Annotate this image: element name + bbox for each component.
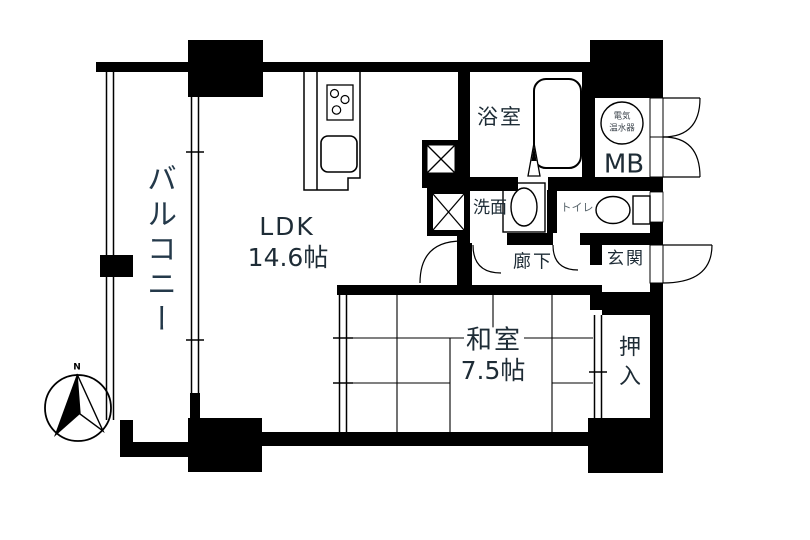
closet-label: 押入 bbox=[611, 335, 643, 393]
wall-genkan-oshiire bbox=[602, 292, 663, 315]
bathroom-fixtures bbox=[528, 79, 581, 176]
ldk-label: LDK bbox=[259, 214, 315, 240]
ldk-washitsu-sliding-door bbox=[333, 295, 353, 432]
floor-plan: バルコニー LDK 14.6帖 浴室 電気 温水器 MB 洗面 トイレ 廊下 玄… bbox=[0, 0, 810, 540]
pipe-shaft-icon-1 bbox=[422, 140, 460, 178]
interior-door-arcs bbox=[420, 241, 578, 283]
mb-doors-icon bbox=[650, 98, 700, 177]
balcony-label: バルコニー bbox=[136, 163, 180, 338]
pipe-shaft-icon-2 bbox=[427, 188, 470, 236]
wall-balcony-corner bbox=[120, 420, 133, 442]
toilet-tank bbox=[633, 196, 650, 224]
wall-balcony-bottom bbox=[120, 442, 188, 457]
meter-box-label: MB bbox=[604, 151, 644, 178]
bathtub-icon bbox=[534, 79, 581, 168]
wall-washitsu-top bbox=[337, 285, 593, 295]
entrance-label: 玄関 bbox=[607, 251, 645, 269]
stove-icon bbox=[327, 85, 353, 120]
wall-block-bottom-left bbox=[188, 418, 262, 472]
wall-hall-top-2 bbox=[580, 233, 663, 245]
japanese-room-label: 和室 bbox=[464, 327, 524, 354]
kitchen-sink-icon bbox=[321, 136, 357, 172]
wall-balcony-left-block bbox=[100, 255, 133, 277]
compass-icon bbox=[45, 374, 111, 441]
wall-genkan-left-low bbox=[590, 285, 602, 310]
balcony-outer-rail bbox=[107, 72, 114, 420]
wall-balcony-top bbox=[96, 62, 190, 72]
floor-plan-drawing bbox=[0, 0, 810, 540]
toilet-bowl bbox=[596, 197, 630, 224]
wall-bath-bottom-left bbox=[470, 177, 518, 191]
wall-bottom bbox=[262, 432, 588, 446]
wall-wash-toilet bbox=[547, 190, 557, 233]
ldk-door-arc bbox=[420, 241, 462, 283]
compass-north-label: N bbox=[73, 363, 81, 372]
wall-block-bottom-right bbox=[588, 418, 663, 473]
burner-icons bbox=[331, 90, 350, 115]
toilet-door-arc bbox=[553, 245, 578, 270]
wall-window-end bbox=[190, 393, 200, 420]
japanese-room-size-label: 7.5帖 bbox=[459, 358, 528, 384]
wall-block-top-left bbox=[188, 40, 263, 97]
toilet-label: トイレ bbox=[561, 202, 594, 214]
water-heater-label-line1: 電気 bbox=[613, 113, 630, 122]
wall-block-top-right bbox=[590, 40, 663, 98]
washroom-label: 洗面 bbox=[473, 200, 507, 218]
entrance-door-icon bbox=[650, 245, 712, 283]
bath-label: 浴室 bbox=[477, 106, 523, 128]
wall-bath-mb bbox=[582, 72, 595, 177]
toilet-icon bbox=[596, 192, 663, 224]
washroom-door-arc bbox=[473, 245, 501, 273]
ldk-balcony-window bbox=[186, 97, 204, 393]
outer-walls bbox=[96, 40, 663, 473]
water-heater-label-line2: 温水器 bbox=[609, 125, 635, 134]
wall-hall-top-1 bbox=[507, 233, 553, 245]
wall-top bbox=[263, 62, 590, 72]
wall-under-shaft bbox=[422, 177, 470, 188]
hallway-label: 廊下 bbox=[513, 254, 553, 273]
toilet-niche bbox=[650, 192, 663, 222]
wall-genkan-left-up bbox=[590, 245, 602, 265]
kitchen-counter bbox=[304, 72, 360, 190]
wall-hall-pillar bbox=[457, 243, 472, 285]
oshiire-sliding-door bbox=[589, 315, 607, 432]
wall-washroom-left bbox=[457, 236, 470, 243]
ldk-size-label: 14.6帖 bbox=[248, 245, 329, 271]
